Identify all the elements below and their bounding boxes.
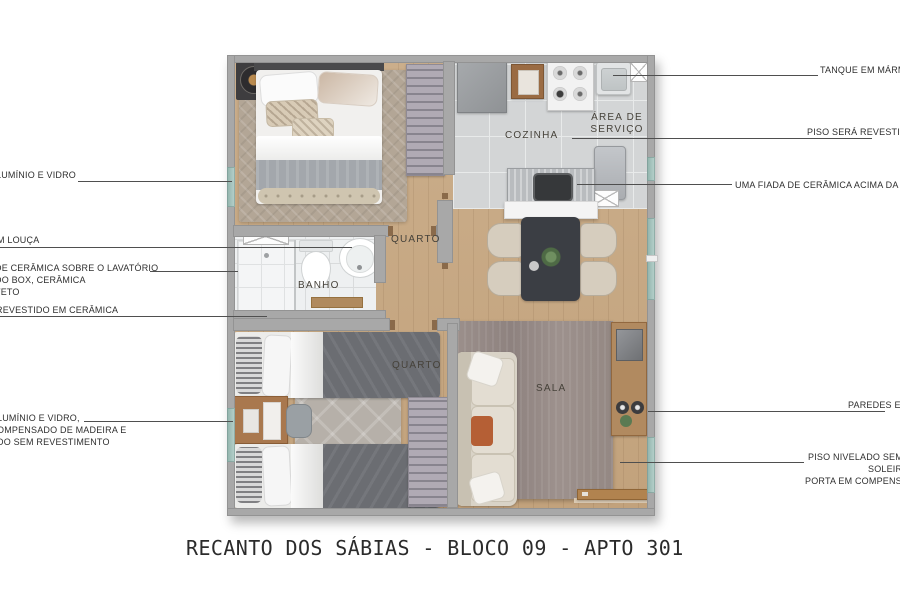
fridge: [457, 62, 507, 113]
room-label-cozinha: COZINHA: [505, 130, 558, 141]
window-frame: [646, 255, 658, 262]
callout-right-5c: PORTA EM COMPENSAD: [805, 475, 900, 487]
callout-right-2: PISO SERÁ REVESTIDO: [807, 126, 900, 138]
leader-line: [150, 271, 238, 272]
bed-blanket: [256, 160, 382, 190]
callout-text: DO BOX, CERÂMICA: [0, 274, 158, 286]
wall-bottom: [227, 508, 655, 516]
door-jamb: [442, 193, 448, 199]
callout-text: PORTA EM COMPENSAD: [805, 475, 900, 487]
room-label-banho: BANHO: [298, 280, 340, 291]
leader-line: [0, 316, 267, 317]
callout-text: PAREDES EM: [848, 399, 900, 411]
shower-head-icon: [264, 253, 269, 258]
pillow-patterned: [236, 447, 262, 503]
table-cup-icon: [529, 261, 539, 271]
burner-icon: [573, 87, 587, 101]
wall-hall-dining: [437, 200, 453, 263]
sofa: [455, 352, 517, 506]
callout-text: LUMÍNIO E VIDRO,: [0, 412, 126, 424]
room-label-sala: SALA: [536, 383, 566, 394]
room-label-quarto-top: QUARTO: [391, 234, 441, 245]
callout-left-4: REVESTIDO EM CERÂMICA: [0, 304, 118, 316]
callout-text: PISO SERÁ REVESTIDO: [807, 126, 900, 138]
stove: [547, 60, 594, 111]
bedroom1-bed: [256, 70, 382, 204]
callout-text: M LOUÇA: [0, 234, 39, 246]
dining-chair: [580, 261, 617, 296]
wall-bedroom1-bath: [233, 225, 389, 237]
desk-keyboard: [243, 409, 259, 433]
room-label-quarto-bottom: QUARTO: [392, 360, 442, 371]
callout-left-3: DE CERÂMICA SOBRE O LAVATÓRIO DO BOX, CE…: [0, 262, 158, 298]
bed-sheet-fold: [291, 444, 325, 508]
bedroom1-wardrobe: [406, 64, 445, 176]
door-jamb: [390, 320, 395, 330]
kitchen-cabinet: [511, 64, 544, 99]
sofa-pillow-orange: [471, 416, 493, 446]
pillow: [261, 445, 292, 506]
window-service: [647, 157, 655, 181]
bedroom2-wardrobe: [408, 397, 450, 507]
pillow: [261, 334, 292, 397]
wall-bath-right: [374, 235, 386, 283]
leader-line: [84, 421, 233, 422]
burner-icon: [573, 66, 587, 80]
tank-basin: [601, 68, 627, 91]
door-jamb: [432, 320, 437, 330]
pillow: [317, 71, 379, 107]
desk-paper: [263, 402, 281, 440]
shower-glass-line: [294, 240, 296, 310]
wall-bedroom2-top: [233, 318, 390, 331]
wall-bedroom1-kitchen: [443, 61, 455, 175]
shower-box: [237, 240, 296, 312]
cutting-board: [518, 70, 539, 95]
console-plant-icon: [620, 415, 632, 427]
window-bedroom1: [227, 167, 235, 207]
tv-decor: [616, 329, 643, 361]
pillow-patterned: [236, 336, 262, 394]
service-window-icon: [630, 62, 648, 82]
wall-top: [227, 55, 655, 63]
bedroom2-desk: [234, 396, 288, 444]
dining-chair: [487, 261, 524, 296]
faucet-icon: [357, 265, 362, 270]
callout-text: DE CERÂMICA SOBRE O LAVATÓRIO: [0, 262, 158, 274]
area-servico-line1: ÁREA DE: [585, 112, 649, 124]
callout-text: REVESTIDO EM CERÂMICA: [0, 304, 118, 316]
kitchen-sink: [533, 173, 573, 202]
door-jamb: [442, 263, 448, 269]
callout-text: UMA FIADA DE CERÂMICA ACIMA DA PI: [735, 179, 900, 191]
desk-chair: [286, 404, 312, 438]
wall-bedroom2-sala: [447, 323, 458, 508]
dining-chair: [580, 223, 617, 258]
table-plant-icon: [541, 247, 561, 267]
bath-shelf: [311, 297, 363, 308]
kitchen-counter: [507, 168, 595, 203]
leader-line: [78, 181, 232, 182]
bed-foot-pillow: [258, 188, 380, 204]
window-bedroom2: [227, 408, 235, 462]
laundry-tank: [596, 62, 631, 95]
room-label-area-servico: ÁREA DE SERVIÇO: [585, 112, 649, 136]
console-plate-icon: [616, 401, 629, 414]
dining-chair: [487, 223, 524, 258]
leader-line: [648, 411, 885, 412]
area-servico-line2: SERVIÇO: [585, 124, 649, 136]
callout-text: LUMÍNIO E VIDRO: [0, 169, 76, 181]
leader-line: [613, 75, 818, 76]
burner-icon: [553, 66, 567, 80]
leader-line: [572, 138, 872, 139]
floorplan-canvas: COZINHA ÁREA DE SERVIÇO QUARTO BANHO QUA…: [0, 0, 900, 600]
window-sala: [647, 437, 655, 493]
tv-console: [611, 322, 647, 436]
leader-line: [0, 247, 352, 248]
callout-right-5a: PISO NIVELADO SEM: [808, 451, 900, 463]
burner-icon: [553, 87, 567, 101]
leader-line: [620, 462, 804, 463]
entry-door: [577, 489, 649, 500]
dining-table: [521, 217, 580, 301]
callout-right-3: UMA FIADA DE CERÂMICA ACIMA DA PI: [735, 179, 900, 191]
callout-text: PISO NIVELADO SEM: [808, 451, 900, 463]
callout-right-5b: SOLEIR: [868, 463, 900, 475]
bed-sheet-fold: [291, 332, 325, 398]
leader-line: [577, 184, 732, 185]
callout-text: TETO: [0, 286, 158, 298]
callout-right-4: PAREDES EM: [848, 399, 900, 411]
console-plate-icon: [631, 401, 644, 414]
callout-text: TANQUE EM MÁRMO: [820, 64, 900, 76]
callout-text: DO SEM REVESTIMENTO: [0, 436, 126, 448]
page-title: RECANTO DOS SÁBIAS - BLOCO 09 - APTO 301: [186, 536, 684, 560]
callout-right-1: TANQUE EM MÁRMO: [820, 64, 900, 76]
door-handle-icon: [582, 492, 588, 496]
callout-text: OMPENSADO DE MADEIRA E: [0, 424, 126, 436]
callout-left-2: M LOUÇA: [0, 234, 39, 246]
callout-text: SOLEIR: [868, 463, 900, 475]
callout-left-5: LUMÍNIO E VIDRO, OMPENSADO DE MADEIRA E …: [0, 412, 126, 448]
callout-left-1: LUMÍNIO E VIDRO: [0, 169, 76, 181]
